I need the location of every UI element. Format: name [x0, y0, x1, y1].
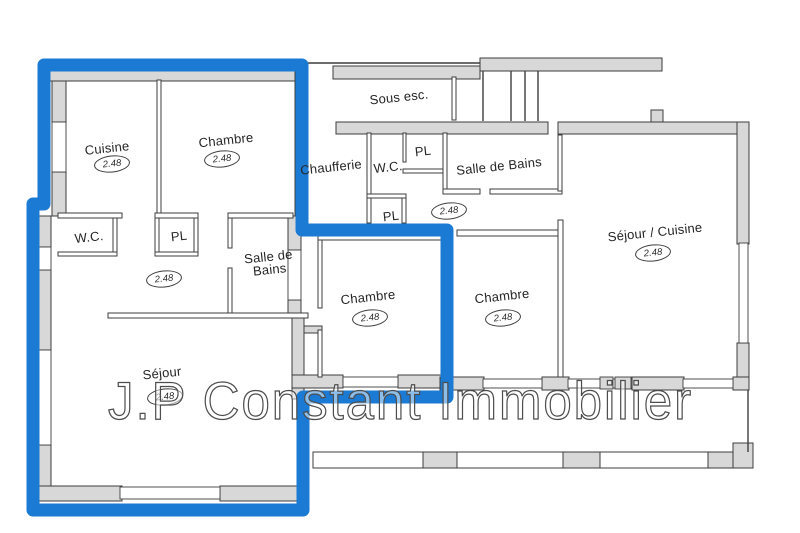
room-label-sejour: Séjour [142, 365, 182, 382]
stair-treads [483, 71, 538, 121]
room-label-pl-mid-upper: PL [414, 144, 432, 159]
room-label-salle-de-bains-left: Salle de Bains [243, 248, 294, 279]
floor-plan-drawing [0, 0, 800, 533]
room-label-wc-mid: W.C. [373, 159, 403, 175]
windows [37, 122, 748, 499]
floor-plan: Cuisine Chambre Sous esc. Chaufferie W.C… [0, 0, 800, 533]
walls [37, 58, 753, 501]
room-label-pl-left: PL [170, 229, 188, 244]
balcony [313, 452, 753, 468]
room-label-pl-mid-lower: PL [382, 209, 400, 224]
room-label-wc-left: W.C. [74, 229, 104, 245]
